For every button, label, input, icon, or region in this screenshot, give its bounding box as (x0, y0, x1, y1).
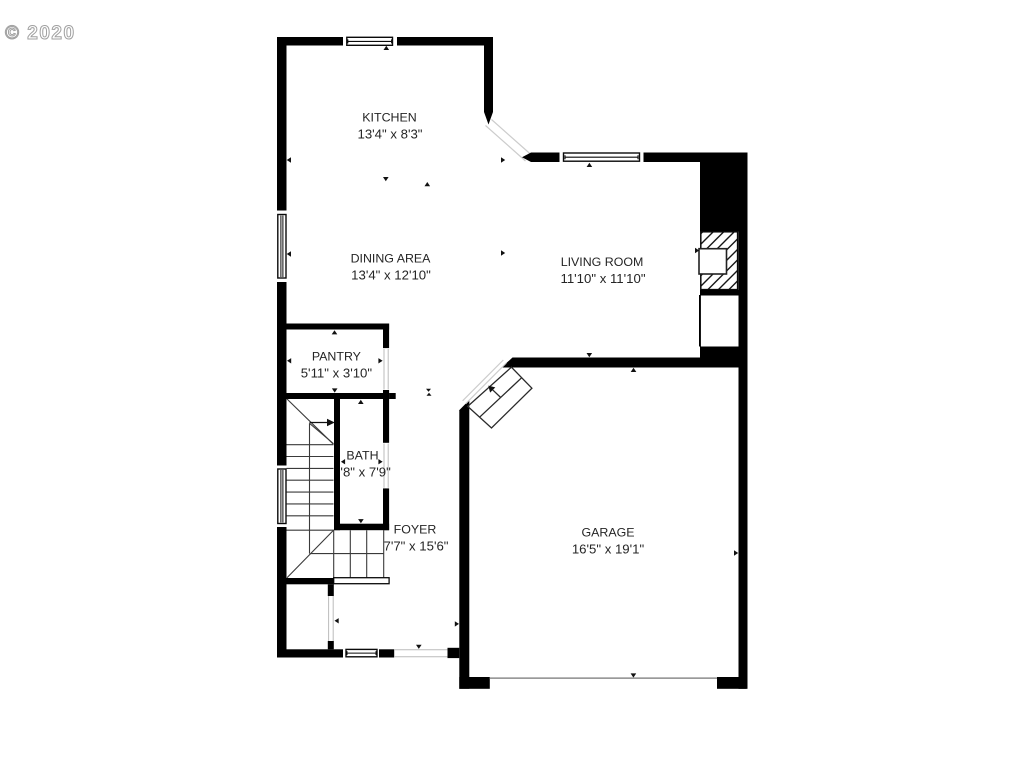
svg-text:GARAGE: GARAGE (581, 526, 634, 540)
svg-text:PANTRY: PANTRY (312, 350, 361, 364)
svg-text:BATH: BATH (346, 449, 378, 463)
svg-text:KITCHEN: KITCHEN (362, 111, 416, 125)
svg-text:DINING AREA: DINING AREA (351, 252, 432, 266)
svg-text:13'4" x 8'3": 13'4" x 8'3" (358, 127, 423, 142)
svg-text:LIVING ROOM: LIVING ROOM (561, 255, 644, 269)
svg-text:7'7" x 15'6": 7'7" x 15'6" (384, 539, 449, 554)
svg-text:'8" x 7'9": '8" x 7'9" (340, 465, 391, 480)
svg-text:5'11" x 3'10": 5'11" x 3'10" (301, 366, 373, 381)
svg-text:13'4" x 12'10": 13'4" x 12'10" (351, 268, 431, 283)
svg-text:FOYER: FOYER (394, 523, 437, 537)
svg-text:© 2020: © 2020 (5, 23, 76, 44)
svg-text:16'5" x 19'1": 16'5" x 19'1" (572, 542, 645, 557)
svg-text:11'10" x 11'10": 11'10" x 11'10" (560, 271, 645, 286)
